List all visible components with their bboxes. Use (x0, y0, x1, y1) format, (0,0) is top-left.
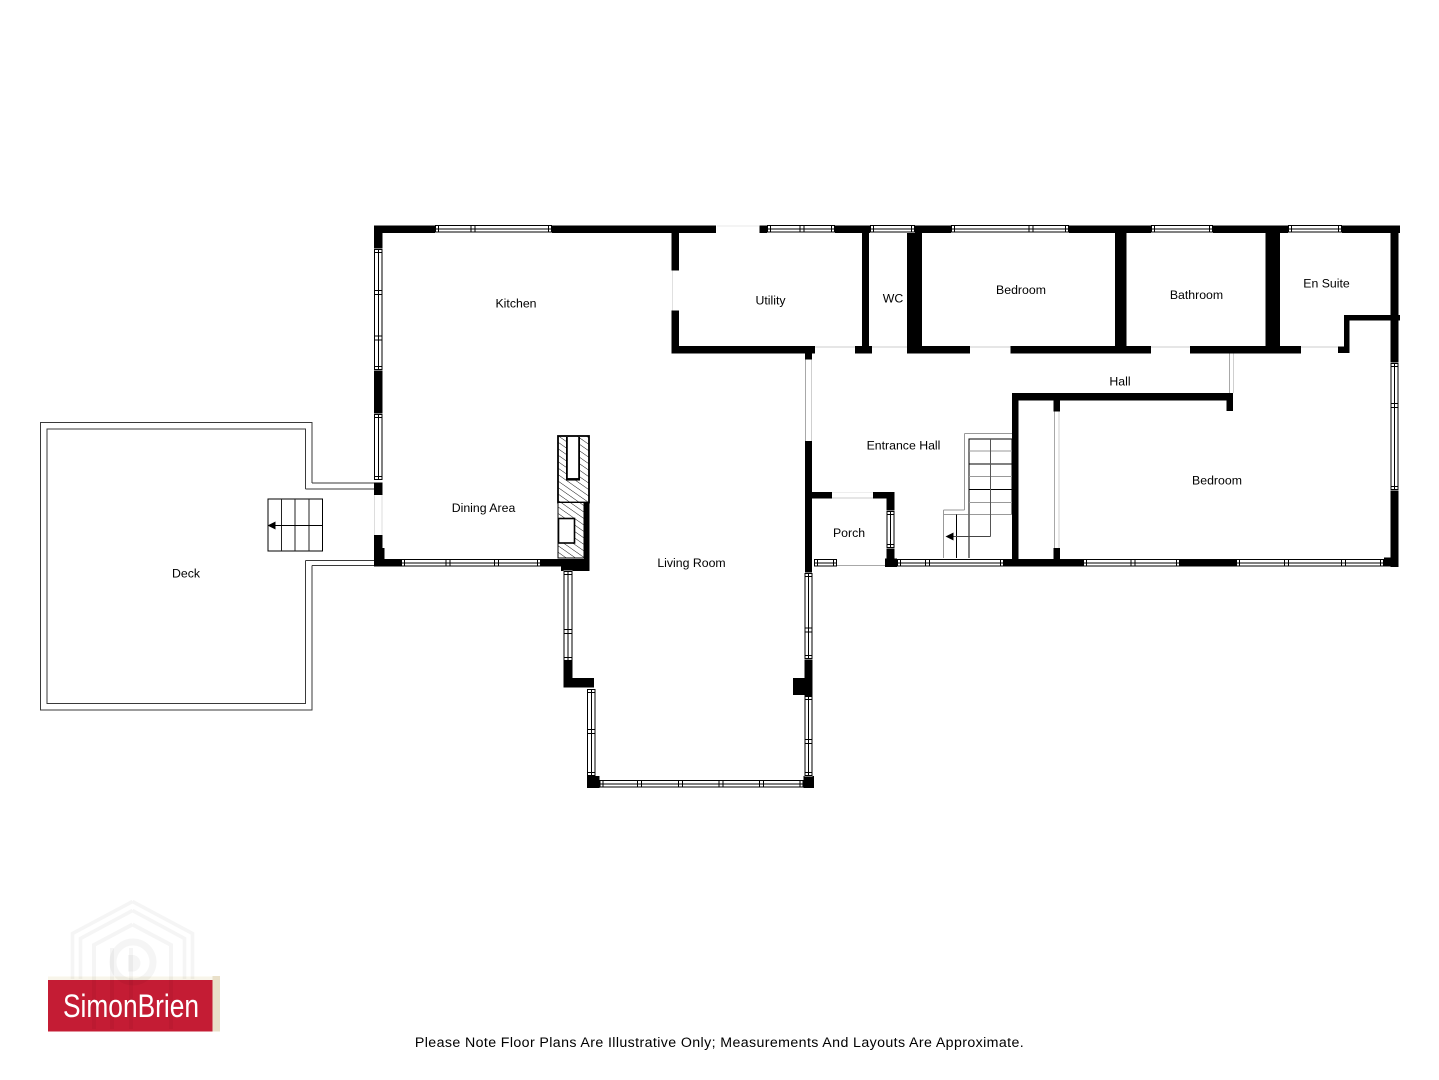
svg-text:Entrance Hall: Entrance Hall (867, 439, 941, 453)
svg-text:Living Room: Living Room (657, 556, 725, 570)
svg-text:Bedroom: Bedroom (996, 283, 1046, 297)
svg-text:Kitchen: Kitchen (495, 297, 536, 311)
svg-text:WC: WC (883, 292, 904, 306)
svg-text:Dining Area: Dining Area (452, 501, 516, 515)
svg-text:Utility: Utility (755, 294, 786, 308)
svg-text:Deck: Deck (172, 567, 201, 581)
svg-text:Porch: Porch (833, 526, 865, 540)
svg-text:Bedroom: Bedroom (1192, 474, 1242, 488)
svg-text:Hall: Hall (1109, 375, 1130, 389)
svg-text:En Suite: En Suite (1303, 277, 1350, 291)
svg-text:Bathroom: Bathroom (1170, 288, 1223, 302)
svg-text:SimonBrien: SimonBrien (63, 988, 199, 1024)
svg-text:Please Note Floor Plans Are Il: Please Note Floor Plans Are Illustrative… (415, 1035, 1024, 1051)
